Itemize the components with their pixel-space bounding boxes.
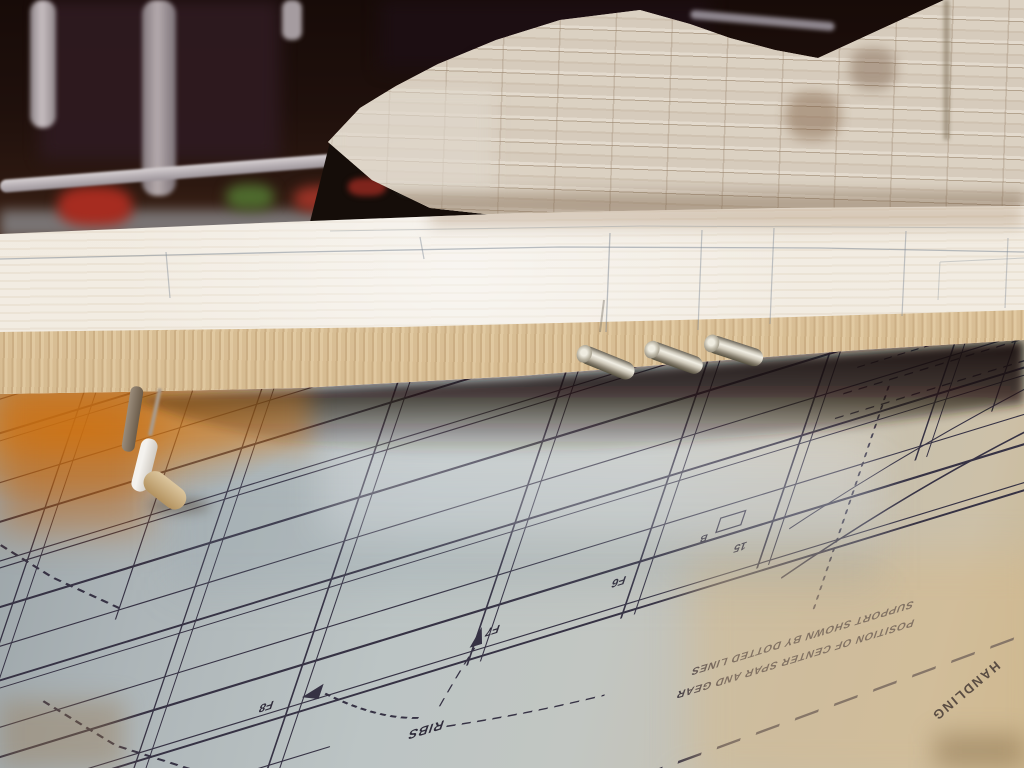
wing-panel-lines [0,0,1024,400]
photo-model-airplane-on-plan: RIBS F7 F8 F6 15 B POSITION OF CENTER SP… [0,0,1024,768]
